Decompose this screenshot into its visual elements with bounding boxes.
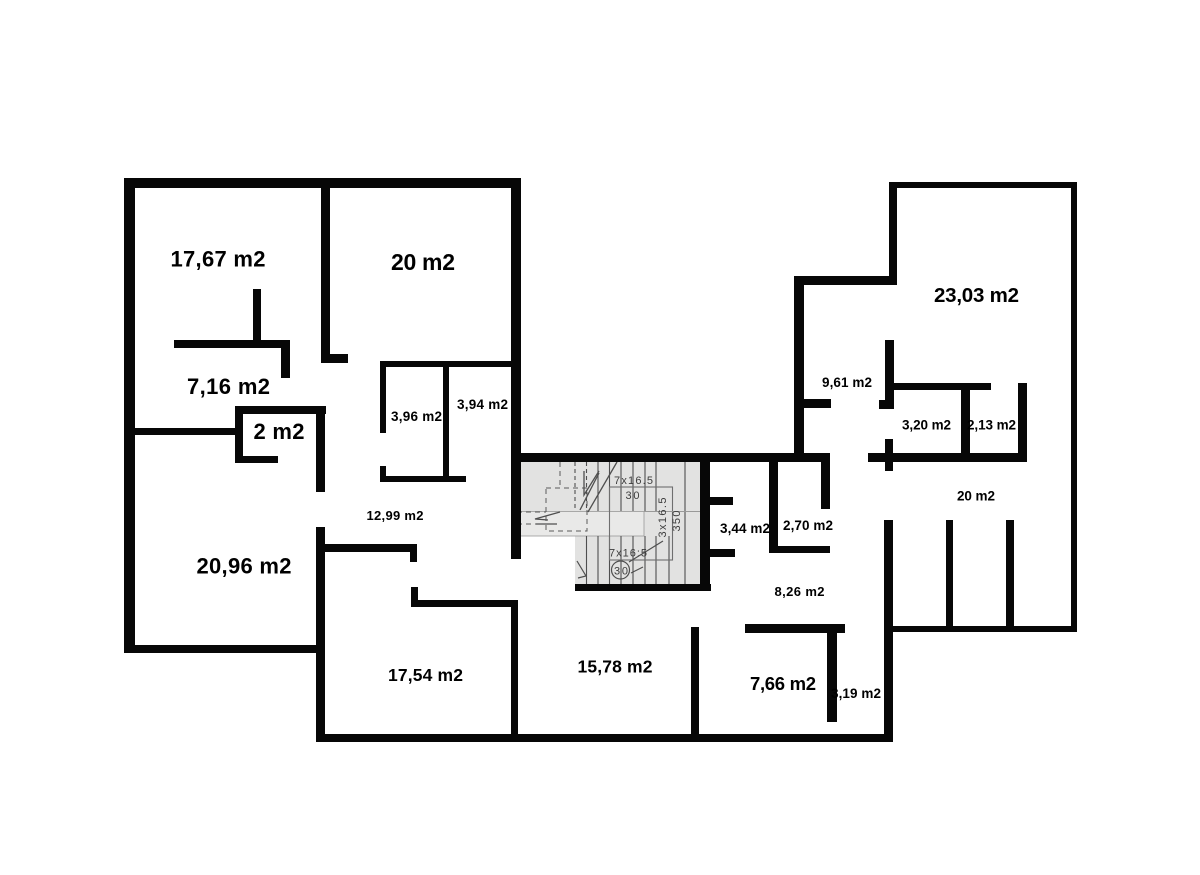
svg-text:20 m2: 20 m2	[391, 249, 455, 275]
svg-text:23,03 m2: 23,03 m2	[934, 284, 1019, 307]
svg-text:3,96 m2: 3,96 m2	[391, 409, 442, 424]
svg-text:3x16.5: 3x16.5	[657, 498, 669, 538]
svg-text:15,78 m2: 15,78 m2	[578, 657, 653, 677]
svg-text:3,94 m2: 3,94 m2	[457, 397, 508, 412]
svg-text:12,99 m2: 12,99 m2	[367, 508, 424, 523]
svg-text:7,66 m2: 7,66 m2	[750, 673, 816, 694]
svg-text:3,20 m2: 3,20 m2	[902, 418, 951, 433]
svg-text:2,13 m2: 2,13 m2	[967, 418, 1016, 433]
svg-text:7x16:5: 7x16:5	[609, 548, 647, 560]
svg-text:20,96 m2: 20,96 m2	[197, 554, 292, 579]
svg-text:3,19 m2: 3,19 m2	[831, 686, 881, 701]
svg-text:350: 350	[671, 511, 683, 532]
svg-text:8,26 m2: 8,26 m2	[775, 584, 825, 599]
svg-text:7x16.5: 7x16.5	[614, 475, 653, 487]
svg-text:30: 30	[614, 566, 628, 578]
svg-text:17,54 m2: 17,54 m2	[388, 665, 463, 685]
svg-text:9,61 m2: 9,61 m2	[822, 375, 872, 390]
svg-text:2,70 m2: 2,70 m2	[783, 518, 833, 533]
svg-text:17,67 m2: 17,67 m2	[171, 247, 266, 272]
svg-text:2 m2: 2 m2	[254, 419, 305, 444]
svg-text:3,44 m2: 3,44 m2	[720, 521, 770, 536]
svg-text:30: 30	[626, 490, 640, 502]
svg-text:20 m2: 20 m2	[957, 489, 995, 504]
svg-text:7,16 m2: 7,16 m2	[187, 374, 270, 399]
